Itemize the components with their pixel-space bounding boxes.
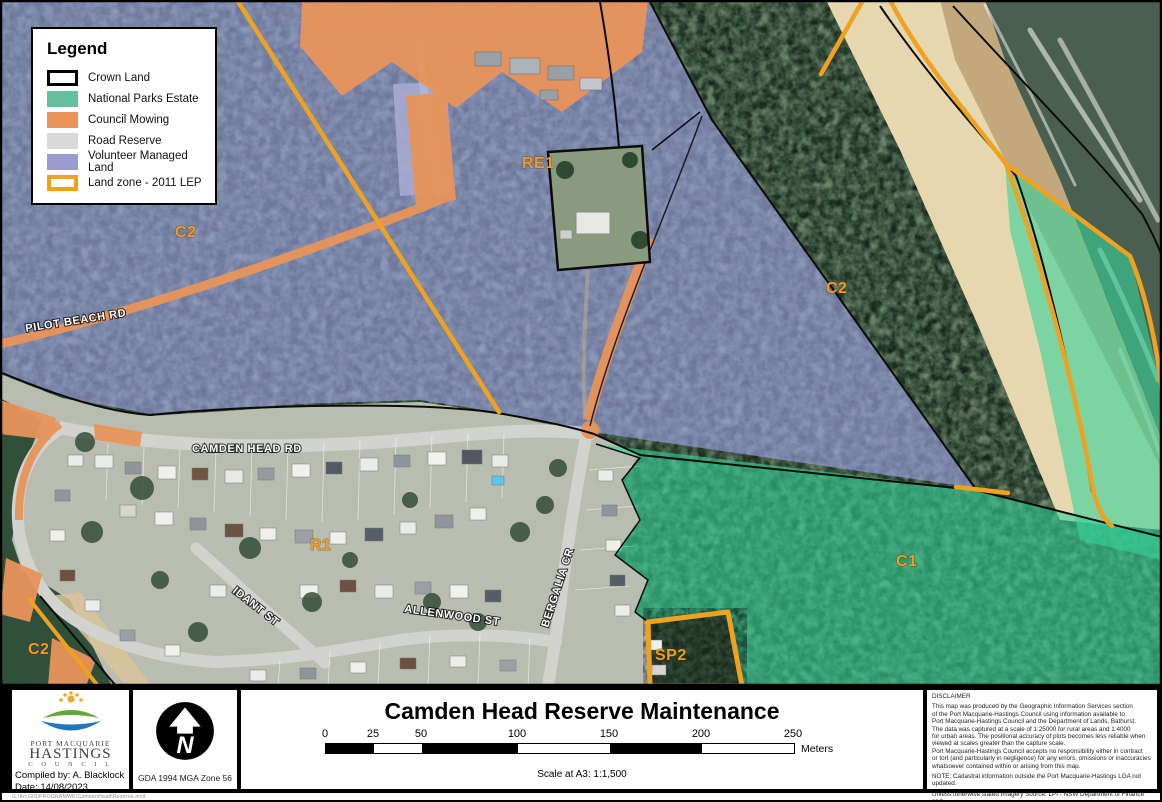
disclaimer-note: NOTE: Cadastral information outside the …	[932, 773, 1152, 788]
legend-item-lep-zone: Land zone - 2011 LEP	[47, 172, 205, 193]
scale-tick: 25	[358, 728, 388, 740]
map-sheet: C2 RE1 C2 C1 R1 SP2 C2 PILOT BEACH RD CA…	[0, 0, 1162, 802]
disclaimer-heading: DISCLAIMER	[932, 693, 1152, 700]
svg-text:N: N	[176, 733, 194, 759]
pool	[492, 476, 504, 485]
scale-bar-ticks: 0 25 50 100 150 200 250	[241, 728, 923, 740]
council-logo	[31, 690, 111, 736]
road-reserve-swatch	[47, 133, 78, 149]
legend-item-road-reserve: Road Reserve	[47, 130, 205, 151]
zone-label-re1: RE1	[522, 155, 555, 172]
zone-label-c1: C1	[896, 553, 917, 570]
zone-label-r1: R1	[310, 537, 331, 554]
north-arrow-icon: N	[150, 696, 220, 766]
legend-item-label: Crown Land	[88, 72, 150, 84]
scale-tick: 100	[502, 728, 532, 740]
title-box: Camden Head Reserve Maintenance 0 25 50 …	[241, 690, 923, 789]
scale-tick: 250	[778, 728, 808, 740]
zone-label-sp2: SP2	[655, 647, 687, 664]
legend-item-crown-land: Crown Land	[47, 67, 205, 88]
council-mowing-swatch	[47, 112, 78, 128]
scale-text: Scale at A3: 1:1,500	[241, 769, 923, 780]
map-date: Date: 14/08/2023	[15, 782, 129, 794]
logo-wave	[41, 721, 101, 731]
footer-bar: PORT MACQUARIE HASTINGS C O U N C I L Co…	[0, 686, 1162, 793]
legend-item-label: Road Reserve	[88, 135, 162, 147]
lep-zone-swatch	[47, 175, 78, 191]
crown-land-swatch	[47, 70, 78, 86]
scale-tick: 200	[686, 728, 716, 740]
legend-item-label: Council Mowing	[88, 114, 169, 126]
imagery-source: Unless otherwise stated Imagery Source: …	[932, 791, 1152, 802]
legend-item-national-parks: National Parks Estate	[47, 88, 205, 109]
building	[576, 212, 610, 234]
legend-item-council-mowing: Council Mowing	[47, 109, 205, 130]
legend-item-label: Land zone - 2011 LEP	[88, 177, 202, 189]
scale-unit: Meters	[801, 743, 833, 755]
scale-tick: 50	[406, 728, 436, 740]
scale-bar	[325, 743, 795, 754]
scale-tick: 0	[310, 728, 340, 740]
compiled-by: Compiled by: A. Blacklock	[15, 770, 129, 782]
road-label-camden-head: CAMDEN HEAD RD	[192, 443, 302, 455]
north-arrow-box: N GDA 1994 MGA Zone 56	[133, 690, 237, 789]
map-title: Camden Head Reserve Maintenance	[241, 698, 923, 725]
logo-text-council: C O U N C I L	[12, 761, 129, 768]
logo-hill	[43, 710, 99, 718]
legend-title: Legend	[47, 39, 205, 59]
legend-item-label: National Parks Estate	[88, 93, 199, 105]
volunteer-land-swatch	[47, 154, 78, 170]
legend-item-volunteer-land: Volunteer Managed Land	[47, 151, 205, 172]
disclaimer-body: This map was produced by the Geographic …	[932, 703, 1152, 770]
council-logo-box: PORT MACQUARIE HASTINGS C O U N C I L Co…	[12, 690, 129, 789]
disclaimer-box: DISCLAIMER This map was produced by the …	[927, 690, 1157, 789]
projection-label: GDA 1994 MGA Zone 56	[133, 773, 237, 783]
logo-text-hastings: HASTINGS	[12, 748, 129, 761]
legend-item-label: Volunteer Managed Land	[88, 150, 205, 174]
logo-sun	[59, 691, 83, 702]
zone-label-c2-east: C2	[826, 280, 847, 297]
national-parks-swatch	[47, 91, 78, 107]
zone-label-c2-west: C2	[175, 224, 196, 241]
scale-tick: 150	[594, 728, 624, 740]
zone-label-c2-south: C2	[28, 641, 49, 658]
document-path: G:\ArcGIS\PROGRAMWK\CamdenHead\Reserve.m…	[12, 794, 146, 800]
legend-panel: Legend Crown Land National Parks Estate …	[31, 27, 217, 205]
shed	[560, 230, 572, 239]
